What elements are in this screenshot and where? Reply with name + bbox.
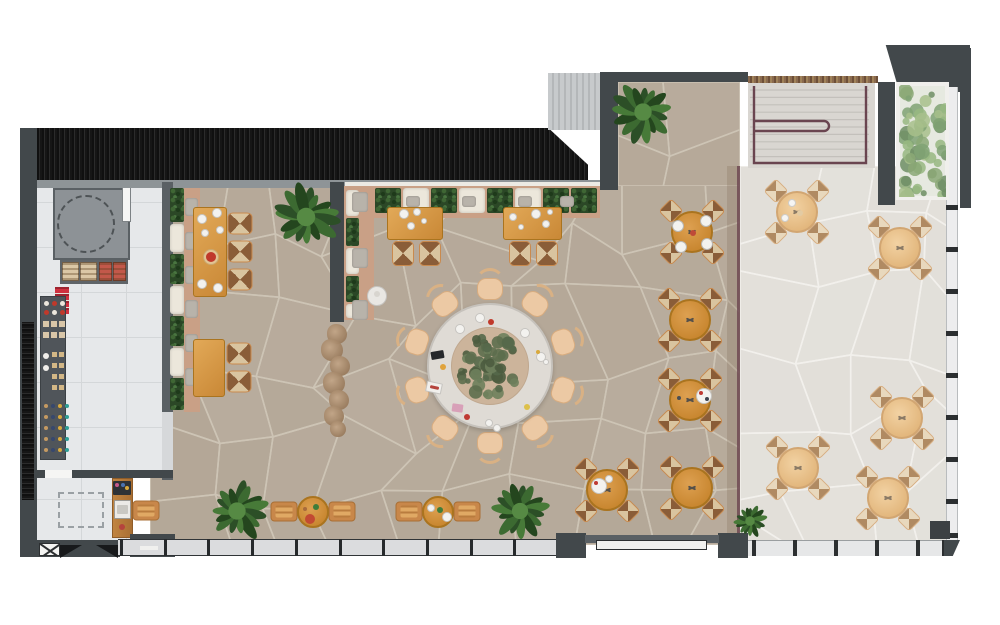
- throw-pillow: [560, 196, 574, 207]
- shelf-item: [44, 437, 48, 441]
- shelf-item: [65, 448, 69, 452]
- shelf-item: [65, 415, 69, 419]
- decor-plate: [455, 324, 465, 334]
- railing-post: [946, 499, 958, 504]
- throw-pillow: [352, 248, 368, 268]
- shelf-item: [52, 374, 57, 379]
- dining-chair: [419, 241, 441, 266]
- plant: [200, 474, 274, 548]
- shelf-item: [59, 374, 64, 379]
- decor-plate: [407, 222, 415, 230]
- throw-pillow: [518, 196, 532, 207]
- shelf-item: [60, 310, 65, 315]
- decor-plate: [509, 213, 517, 221]
- terrace-floor-grate: [930, 521, 950, 539]
- entrance-door: [596, 540, 707, 550]
- shelf-item: [51, 426, 55, 430]
- centerpiece-plant: [456, 332, 524, 400]
- railing-post: [946, 415, 958, 420]
- throw-pillow: [352, 300, 368, 320]
- decor-plate: [781, 214, 789, 222]
- dining-chair: [228, 241, 253, 263]
- chair-slats: [334, 506, 351, 518]
- decor-plate: [524, 404, 530, 410]
- plant: [606, 75, 680, 149]
- shelf-item: [52, 352, 57, 357]
- railing-post: [793, 540, 797, 556]
- decor-plate: [313, 504, 319, 510]
- throw-pillow: [352, 192, 368, 212]
- shelf-item: [65, 437, 69, 441]
- dining-chair: [228, 213, 253, 235]
- stair-railing: [754, 121, 829, 131]
- corner-post: [944, 540, 960, 556]
- shelf-item: [59, 385, 64, 390]
- decor-plate: [399, 209, 409, 219]
- window-post: [295, 539, 298, 556]
- supply-crate: [62, 262, 79, 281]
- shelf-item: [58, 448, 62, 452]
- entrance-frame: [556, 533, 586, 558]
- decor-plate: [206, 252, 216, 262]
- decor-plate: [213, 283, 223, 293]
- west-wall-hatch: [22, 322, 34, 506]
- shelf-item: [51, 415, 55, 419]
- decor-plate: [197, 214, 207, 224]
- plant: [267, 178, 345, 256]
- dining-chair: [396, 502, 423, 522]
- window-post: [120, 539, 123, 556]
- window-post: [382, 539, 385, 556]
- bench-cushion: [170, 286, 184, 314]
- decor-plate: [677, 396, 681, 400]
- far-right-wall: [960, 48, 971, 208]
- decor-plate: [216, 226, 224, 234]
- railing-post: [834, 540, 838, 556]
- shelf-item: [43, 353, 49, 359]
- railing-post: [946, 373, 958, 378]
- shelf-item: [44, 301, 49, 306]
- communal-chair: [477, 278, 503, 300]
- decor-plate: [543, 359, 549, 365]
- shelf-item: [44, 426, 48, 430]
- decor-plate: [374, 291, 380, 297]
- decor-plate: [536, 350, 540, 354]
- decor-plate: [531, 209, 541, 219]
- window-post: [426, 539, 429, 556]
- shelf-item: [51, 332, 57, 338]
- shelf-item: [44, 404, 48, 408]
- northeast-vertical-wall: [878, 82, 895, 205]
- decor-plate: [788, 199, 796, 207]
- dining-chair: [227, 371, 252, 393]
- shelf-item: [51, 448, 55, 452]
- supply-crate: [113, 262, 126, 281]
- window-post: [470, 539, 473, 556]
- shelf-item: [58, 426, 62, 430]
- dining-chair: [392, 241, 414, 266]
- shelf-item: [44, 310, 49, 315]
- decor-plate: [493, 424, 501, 432]
- supply-crate: [99, 262, 112, 281]
- plant: [727, 498, 773, 544]
- shelf-item: [58, 437, 62, 441]
- host-door-leaf: [45, 470, 72, 478]
- shelf-item: [58, 415, 62, 419]
- decor-plate: [413, 208, 421, 216]
- decor-plate: [212, 208, 222, 218]
- shelf-item: [52, 310, 57, 315]
- dining-chair: [329, 502, 356, 522]
- shelf-item: [43, 321, 49, 327]
- chair-slats: [459, 506, 476, 518]
- window-post: [164, 539, 167, 556]
- dining-chair: [454, 502, 481, 522]
- dining-chair: [227, 343, 252, 365]
- shelf-item: [59, 332, 65, 338]
- decor-plate: [520, 328, 530, 338]
- decor-plate: [119, 524, 125, 530]
- decor-plate: [485, 419, 493, 427]
- staircase: [748, 82, 875, 168]
- decor-plate: [303, 507, 307, 511]
- decor-plate: [442, 512, 452, 522]
- decor-plate: [672, 220, 684, 232]
- indoor-outdoor-divider-line: [737, 166, 740, 542]
- railing-post: [916, 540, 920, 556]
- decor-plate: [605, 475, 613, 483]
- decor-plate: [440, 364, 446, 370]
- decor-plate: [705, 397, 709, 401]
- shelf-item: [58, 404, 62, 408]
- shelf-item: [60, 301, 65, 306]
- rect-table: [193, 339, 225, 397]
- dashed-layout-circle: [57, 195, 115, 253]
- shelf-item: [43, 332, 49, 338]
- decor-plate: [437, 507, 443, 513]
- decor-item: [451, 403, 463, 412]
- decor-plate: [518, 224, 524, 230]
- decor-plate: [421, 218, 427, 224]
- throw-pillow: [462, 196, 476, 207]
- hedge-planter: [346, 218, 359, 246]
- dining-chair: [228, 269, 253, 291]
- shelf-item: [65, 426, 69, 430]
- shelf-item: [44, 415, 48, 419]
- railing-post: [875, 540, 879, 556]
- decor-plate: [701, 238, 713, 250]
- dried-branch: [330, 421, 346, 437]
- shelf-item: [52, 301, 57, 306]
- shelf-item: [44, 448, 48, 452]
- railing-post: [946, 289, 958, 294]
- dining-chair: [536, 241, 558, 266]
- hedge-planter: [170, 316, 184, 346]
- decor-plate: [427, 504, 435, 512]
- round-table: [297, 496, 329, 528]
- decor-plate: [690, 230, 696, 236]
- hedge-planter: [346, 276, 359, 302]
- shelf-item: [52, 363, 57, 368]
- chair-slats: [138, 505, 155, 517]
- kitchen-door-leaf: [122, 184, 131, 222]
- host-chair: [133, 501, 160, 521]
- hedge-planter: [170, 378, 184, 410]
- decor-plate: [542, 220, 550, 228]
- decor-plate: [464, 414, 470, 420]
- shelf-item: [51, 321, 57, 327]
- decor-plate: [547, 209, 553, 215]
- decor-plate: [675, 241, 687, 253]
- decor-plate: [305, 514, 315, 524]
- shelf-item: [43, 365, 49, 371]
- shelf-item: [59, 363, 64, 368]
- chair-slats: [401, 506, 418, 518]
- window-post: [339, 539, 342, 556]
- supply-crate: [80, 262, 97, 281]
- floor-plan: [0, 0, 1000, 625]
- bench-cushion: [170, 348, 184, 376]
- throw-pillow: [185, 300, 198, 318]
- door-window: [39, 543, 60, 556]
- shelf-item: [59, 321, 65, 327]
- decor-plate: [797, 210, 803, 216]
- hedge-planter: [170, 188, 184, 222]
- decor-item: [117, 505, 128, 514]
- service-slit: [140, 546, 158, 550]
- railing-post: [946, 457, 958, 462]
- decor-plate: [700, 215, 712, 227]
- decor-plate: [475, 313, 485, 323]
- glass-block: [548, 73, 600, 130]
- chair-slats: [276, 506, 293, 518]
- dashed-layout-rect: [58, 492, 104, 528]
- shelf-item: [51, 404, 55, 408]
- dining-chair: [271, 502, 298, 522]
- decor-plate: [699, 391, 703, 395]
- hedge-planter: [571, 188, 597, 213]
- bench-cushion: [170, 224, 184, 252]
- decor-plate: [696, 388, 712, 404]
- decor-plate: [197, 279, 207, 289]
- kitchen-pass-window: [162, 412, 173, 470]
- decor-plate: [125, 486, 129, 490]
- shelf-item: [59, 352, 64, 357]
- shelf-item: [52, 385, 57, 390]
- shelf-item: [65, 404, 69, 408]
- railing-post: [946, 205, 958, 210]
- decor-plate: [115, 483, 119, 487]
- plant: [485, 476, 555, 546]
- dining-chair: [509, 241, 531, 266]
- decor-plate: [488, 319, 494, 325]
- north-wall: [22, 128, 588, 182]
- planter-haze: [896, 82, 949, 200]
- communal-chair: [477, 432, 503, 454]
- throw-pillow: [406, 196, 420, 207]
- west-wall-south: [20, 500, 37, 557]
- railing-post: [946, 331, 958, 336]
- shelf-item: [51, 437, 55, 441]
- decor-plate: [594, 481, 598, 485]
- railing-post: [946, 247, 958, 252]
- decor-plate: [201, 229, 209, 237]
- hedge-planter: [170, 254, 184, 284]
